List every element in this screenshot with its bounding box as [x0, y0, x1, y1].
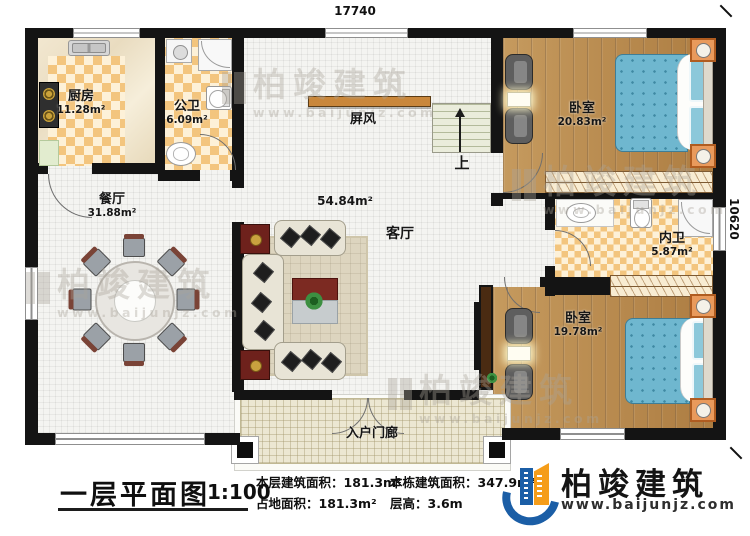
toilet-tank: [633, 200, 649, 209]
room-area: 11.28m²: [48, 105, 114, 117]
dining-chair: [123, 343, 145, 362]
armchair: [505, 108, 533, 144]
stat-value: 3.6m: [428, 496, 463, 511]
room-name: 卧室: [550, 102, 614, 117]
room-area: 6.09m²: [162, 115, 212, 127]
stat-label: 本层建筑面积：: [256, 475, 344, 490]
stairs-arrow-head: [455, 103, 465, 117]
room-area: 20.83m²: [550, 117, 614, 129]
wall-kitchen-bottom-b: [92, 163, 158, 174]
floor-plan-canvas: 17740 10620: [0, 0, 750, 523]
stats-column-left: 本层建筑面积：181.3m² 占地面积：181.3m²: [256, 472, 402, 514]
sofa-pillow: [254, 320, 275, 341]
dining-chair: [73, 289, 92, 311]
wall-innerbath-left-a: [545, 196, 555, 230]
logo-building-blue: [520, 468, 533, 505]
tv-panel: [474, 302, 481, 370]
sofa-left: [242, 254, 284, 350]
room-name: 客厅: [380, 227, 420, 243]
floor-plant: [486, 372, 498, 384]
inner-bath-sink: [566, 203, 596, 223]
sofa-top: [274, 220, 346, 256]
plan-title: 一层平面图: [60, 473, 210, 512]
room-name: 公卫: [162, 100, 212, 115]
kitchen-label: 厨房 11.28m²: [48, 90, 114, 116]
stairs-up-text: 上: [452, 155, 472, 172]
room-name: 餐厅: [82, 193, 142, 208]
wall-living-bottom-left: [234, 390, 332, 400]
room-area: 31.88m²: [82, 208, 142, 220]
armchair: [505, 364, 533, 400]
room-name: 入户门廊: [338, 427, 406, 442]
wall-hall-stub: [491, 193, 503, 206]
public-bath-label: 公卫 6.09m²: [162, 100, 212, 126]
room-name: 卧室: [546, 312, 610, 327]
sofa-pillow: [301, 349, 322, 370]
stat-label: 本栋建筑面积：: [390, 475, 478, 490]
washing-machine: [166, 39, 192, 63]
window-top-hall: [325, 28, 408, 38]
sofa-bottom: [274, 342, 346, 380]
wardrobe-bedroom-top: [545, 171, 713, 193]
sofa-pillow: [320, 228, 341, 249]
dining-chair: [177, 289, 196, 311]
exterior-wall-left: [25, 28, 38, 445]
window-top-kitchen: [73, 28, 140, 38]
bed-top: [615, 52, 713, 152]
window-bottom-bedroom: [560, 428, 625, 440]
bed-bottom: [625, 316, 713, 404]
stairs-up-label: 上: [452, 155, 472, 172]
room-area: 54.84m²: [315, 195, 375, 208]
table-plant: [304, 291, 324, 311]
dimension-right: 10620: [727, 198, 741, 258]
bedroom-side-table: [507, 346, 531, 361]
sofa-pillow: [251, 292, 272, 313]
sofa-pillow: [253, 262, 274, 283]
toilet-bowl: [634, 209, 650, 228]
inner-bath-label: 内卫 5.87m²: [644, 232, 700, 258]
armchair: [505, 308, 533, 344]
side-table: [240, 350, 270, 380]
room-area: 19.78m²: [546, 327, 610, 339]
living-name-label: 客厅: [380, 227, 420, 243]
brand-logo-icon: [503, 460, 559, 516]
dimension-top: 17740: [320, 4, 390, 18]
wall-hall-bedroom-top: [491, 28, 503, 153]
bedroom-bottom-label: 卧室 19.78m²: [546, 312, 610, 338]
window-left-dining: [25, 267, 38, 320]
living-area-label: 54.84m²: [315, 195, 375, 208]
kitchen-cutting-board: [39, 140, 59, 166]
nightstand: [690, 38, 716, 62]
public-bath-sink: [166, 142, 196, 166]
inner-bath-toilet: [630, 198, 652, 228]
window-bottom-dining: [55, 433, 205, 445]
sofa-pillow: [321, 352, 342, 373]
nightstand: [690, 294, 716, 318]
bed-headboard: [703, 52, 713, 154]
brand-url: www.baijunjz.com: [561, 497, 736, 513]
dining-chair: [123, 238, 145, 257]
stat-label: 层高：: [390, 496, 428, 511]
window-right-innerbath: [713, 207, 726, 251]
stat-land-area: 占地面积：181.3m²: [256, 493, 402, 514]
bedroom-side-table: [507, 92, 531, 107]
bed-headboard: [703, 316, 713, 406]
sofa-pillow: [280, 227, 301, 248]
side-table: [240, 224, 270, 254]
kitchen-sink: [68, 40, 110, 56]
porch-label: 入户门廊: [338, 427, 406, 442]
window-top-bedroom: [573, 28, 647, 38]
screen-partition: [308, 96, 431, 107]
sofa-pillow: [281, 351, 302, 372]
stat-value: 181.3m²: [319, 496, 377, 511]
armchair: [505, 54, 533, 90]
wall-bedroom-bottom-top: [540, 277, 610, 287]
nightstand: [690, 398, 716, 422]
wall-living-bottom-right: [404, 390, 479, 400]
dimension-tick: [730, 447, 743, 460]
sofa-pillow: [300, 225, 321, 246]
corner-shower: [198, 39, 232, 71]
wall-bath-bottom-a: [158, 170, 200, 181]
room-name: 厨房: [48, 90, 114, 105]
screen-label: 屏风: [340, 113, 386, 128]
room-name: 屏风: [340, 113, 386, 128]
dining-table: [95, 261, 175, 341]
stat-floor-area: 本层建筑面积：181.3m²: [256, 472, 402, 493]
room-name: 内卫: [644, 232, 700, 247]
room-area: 5.87m²: [644, 247, 700, 259]
dining-label: 餐厅 31.88m²: [82, 193, 142, 219]
nightstand: [690, 144, 716, 168]
title-underline: [58, 508, 248, 511]
stairs-direction-arrow: [459, 112, 461, 152]
stat-label: 占地面积：: [256, 496, 319, 511]
dimension-tick: [720, 5, 733, 18]
bedroom-top-label: 卧室 20.83m²: [550, 102, 614, 128]
